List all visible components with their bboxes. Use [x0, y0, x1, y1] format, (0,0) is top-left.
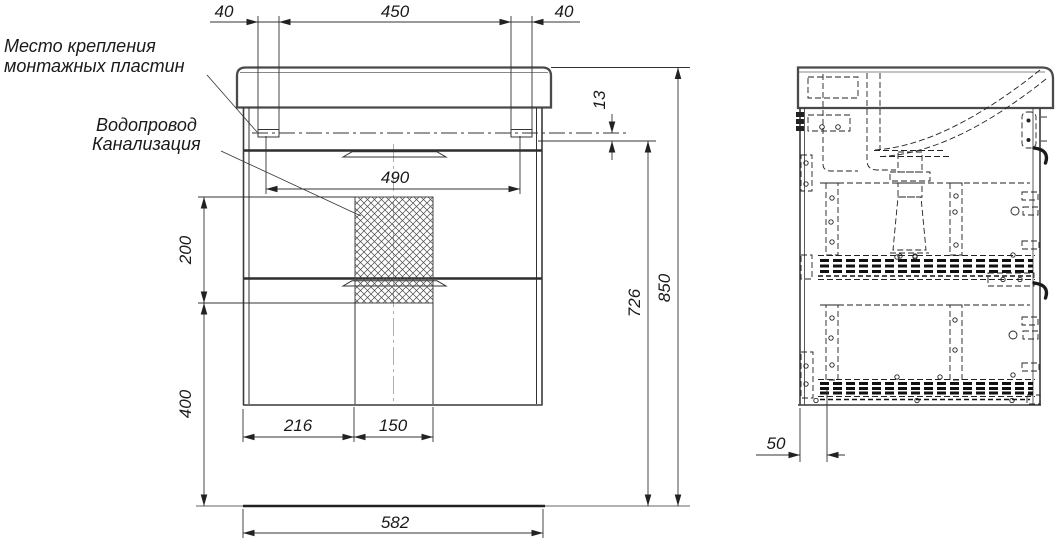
- lower-drawer-hidden: [820, 305, 1030, 380]
- mounting-label-line2: монтажных пластин: [4, 56, 185, 76]
- dim-400: 400: [176, 389, 195, 418]
- drawer-handle-groove-top: [343, 152, 446, 157]
- side-view: [796, 68, 1053, 406]
- dim-216: 216: [283, 416, 313, 435]
- mounting-label-line1: Место крепления: [4, 36, 156, 56]
- dim-top-450: 450: [381, 2, 410, 21]
- dim-top-left-40: 40: [215, 2, 234, 21]
- vanity-installation-drawing: 40 450 40 13 490 200 400 216 150 582 726: [0, 0, 1057, 545]
- dim-490: 490: [381, 168, 410, 187]
- upper-drawer-hidden: [820, 183, 1030, 255]
- plumbing-leader-line: [221, 151, 361, 216]
- upper-drawer-slide: [818, 253, 1035, 286]
- dim-850: 850: [655, 273, 674, 302]
- back-edge-fittings: [801, 155, 1014, 403]
- dim-726: 726: [625, 288, 644, 317]
- front-edge-fittings: [1009, 192, 1040, 404]
- dim-582: 582: [381, 513, 410, 532]
- dim-top-right-40: 40: [555, 2, 574, 21]
- front-view: [196, 68, 690, 507]
- plumbing-label-line2: Канализация: [92, 134, 201, 154]
- plumbing-label-line1: Водопровод: [96, 115, 197, 135]
- hinge-plate: [1022, 112, 1047, 148]
- dim-13: 13: [590, 90, 609, 109]
- washbasin-front-profile: [237, 68, 551, 108]
- siphon-assembly: [890, 152, 930, 258]
- dim-150: 150: [379, 416, 408, 435]
- cabinet-carcass-side: [798, 108, 1041, 405]
- plumbing-hatch-zone: [355, 197, 433, 303]
- technical-drawing-page: 40 450 40 13 490 200 400 216 150 582 726: [0, 0, 1057, 545]
- dim-50: 50: [767, 434, 786, 453]
- lower-drawer-slide: [818, 373, 1035, 400]
- dim-200: 200: [176, 235, 195, 265]
